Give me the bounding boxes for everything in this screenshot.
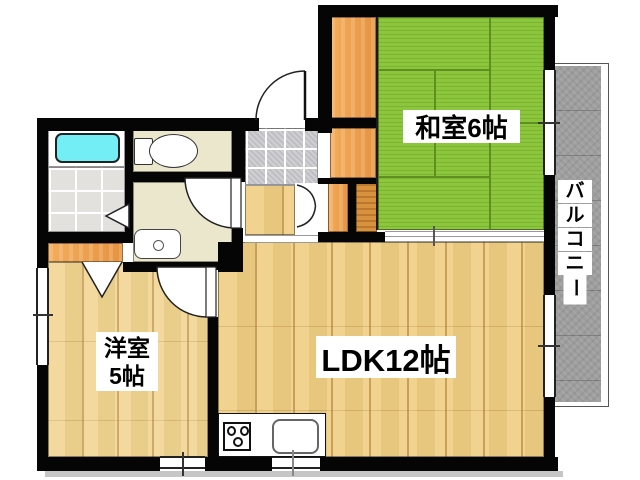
youshitsu-label: 洋室 5帖 <box>96 332 158 391</box>
balcony-label-char: ル <box>558 204 592 227</box>
bifold-door-arc <box>297 185 316 206</box>
washitsu-label: 和室6帖 <box>403 110 520 143</box>
closet-folding-door <box>82 262 122 297</box>
washroom-door-leaf <box>231 178 241 228</box>
balcony-label: バルコニー <box>556 180 594 300</box>
bifold-door-arc <box>297 206 316 227</box>
youshitsu-label-line1: 洋室 <box>104 334 150 362</box>
door-swing-overlay <box>0 0 640 480</box>
washroom-door-swing <box>185 178 235 228</box>
youshitsu-door-swing <box>157 267 207 317</box>
balcony-label-char: コ <box>558 228 592 251</box>
ldk-label: LDK12帖 <box>316 336 456 378</box>
entrance-door-arc <box>256 71 305 120</box>
floorplan: バルコニー <box>0 0 640 480</box>
balcony-label-char: バ <box>558 180 592 203</box>
youshitsu-door-leaf <box>206 267 216 317</box>
balcony-label-char: ー <box>564 271 587 305</box>
bathroom-folding-door <box>106 204 129 228</box>
youshitsu-label-line2: 5帖 <box>109 362 145 390</box>
